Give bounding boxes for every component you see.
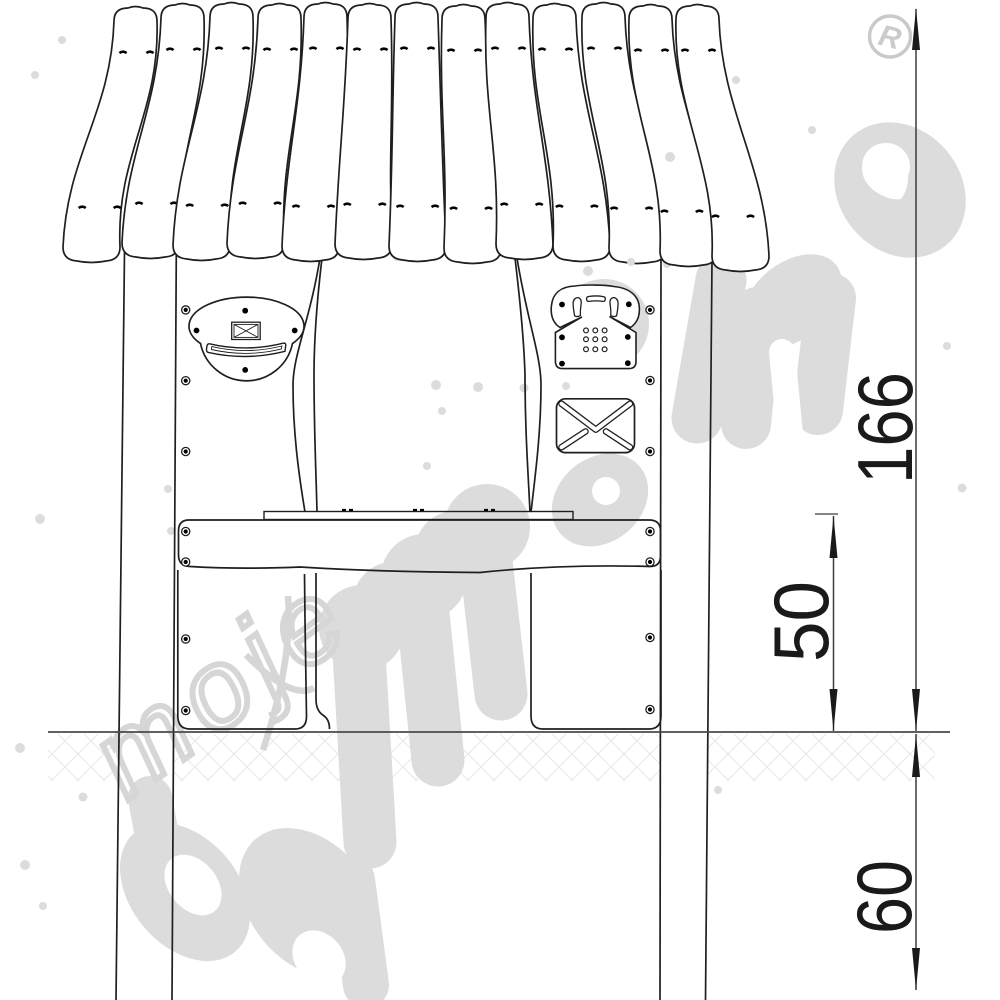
svg-text:60: 60 — [840, 860, 928, 934]
svg-text:166: 166 — [841, 372, 929, 484]
svg-text:50: 50 — [757, 581, 845, 662]
